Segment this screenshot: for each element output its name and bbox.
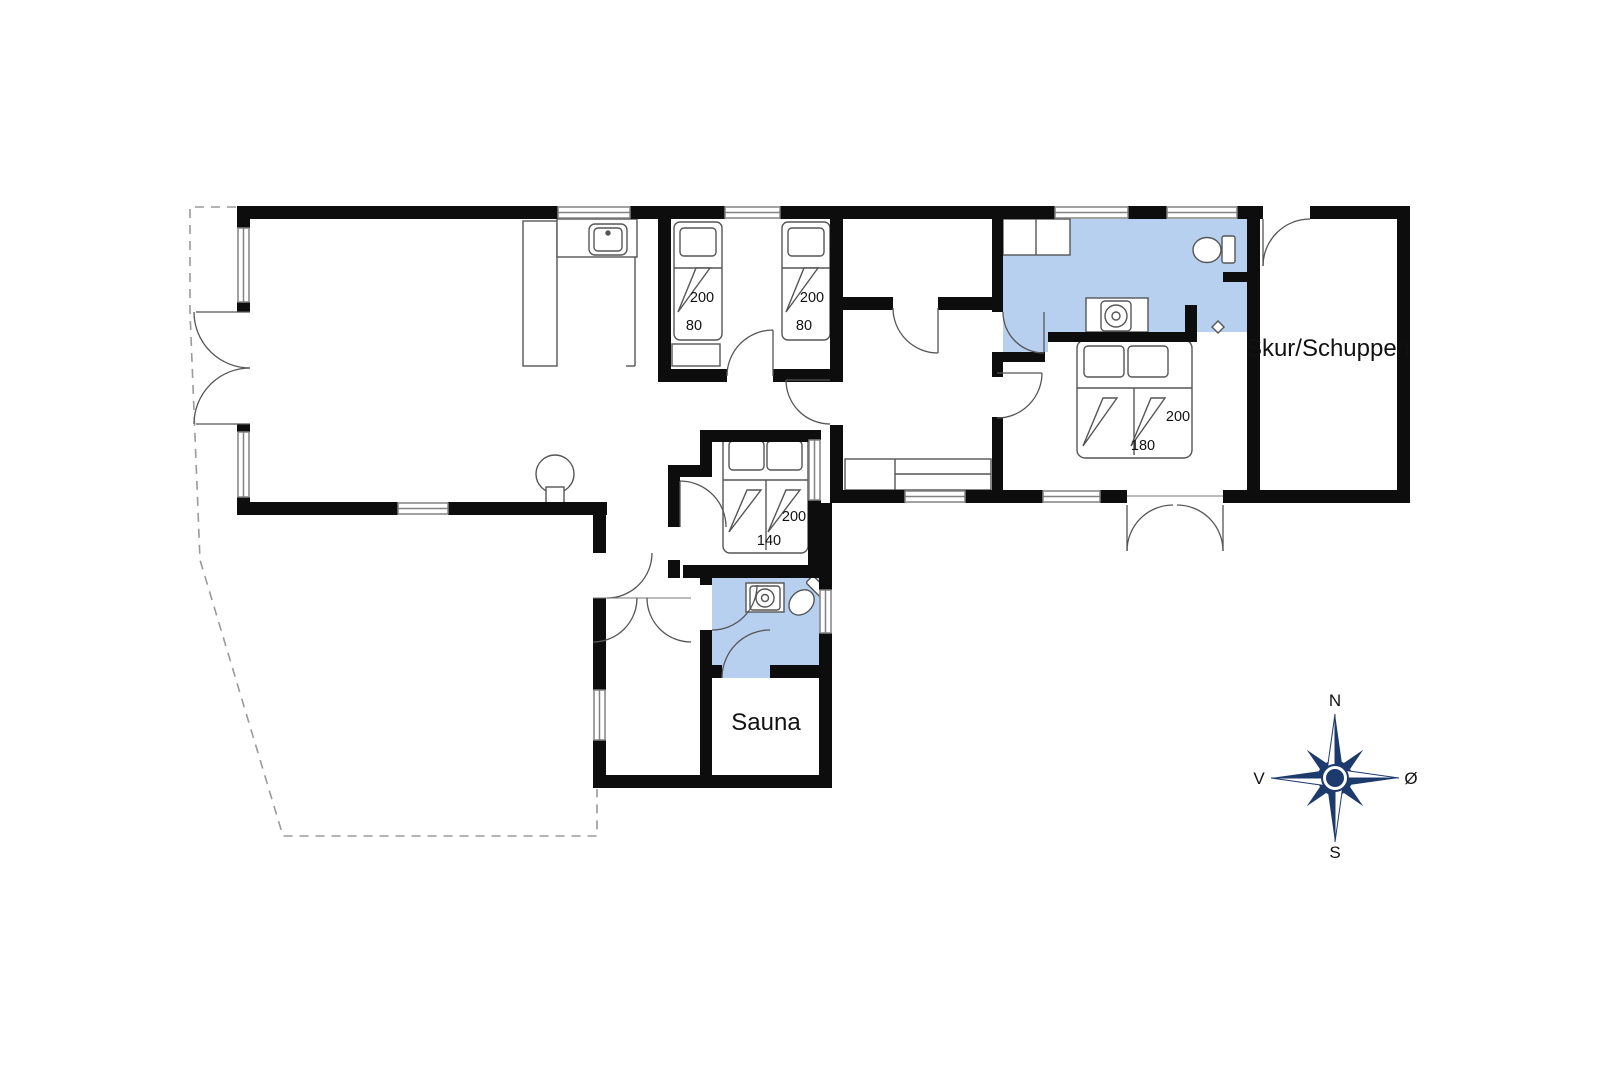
entrance-door [607,553,652,598]
middle-bedroom-door [680,481,726,527]
window [905,491,965,502]
washbasin-upper-icon [1086,298,1148,332]
wardrobe [845,459,991,490]
bathroom-upper-cabinet [1003,219,1070,255]
window [398,503,448,514]
compass-rose-icon: N Ø S V [1253,691,1417,862]
bed-width-label: 180 [1131,438,1155,454]
toilet-upper-icon [1193,236,1235,263]
window [725,207,780,218]
terrace-french-doors [194,312,250,424]
window [238,228,249,302]
floor-plan-svg: 200 80 200 80 200 140 200 180 Sauna Skur… [0,0,1600,1066]
bed-length-label: 200 [690,290,714,306]
window [1043,491,1100,502]
compass-south-label: S [1329,843,1340,862]
bed-length-label: 200 [800,290,824,306]
shed-label: Skur/Schuppen [1246,335,1410,362]
patio-french-doors [1127,496,1223,551]
right-bedroom-door [997,373,1042,418]
bedroom-a-door [727,330,773,376]
sauna-label: Sauna [731,709,801,736]
window [238,432,249,497]
window [820,590,831,633]
corridor-door [786,380,830,424]
window [809,440,820,500]
compass-east-label: Ø [1404,769,1417,788]
dresser [672,344,720,366]
compass-west-label: V [1253,769,1265,788]
window [594,690,605,740]
bed-length-label: 200 [1166,409,1190,425]
wood-stove-icon [536,455,574,503]
bed-width-label: 80 [796,318,812,334]
bed-length-label: 200 [782,509,806,525]
floor-plan-page: 200 80 200 80 200 140 200 180 Sauna Skur… [0,0,1600,1066]
storage-room-door [893,308,938,353]
bed-width-label: 80 [686,318,702,334]
compass-north-label: N [1329,691,1341,710]
shed-door [1263,219,1310,266]
bed-width-label: 140 [757,533,781,549]
window [1055,207,1128,218]
window [558,207,630,218]
kitchen-sink-icon [589,224,627,255]
hall-double-doors [593,598,691,642]
window [1167,207,1237,218]
